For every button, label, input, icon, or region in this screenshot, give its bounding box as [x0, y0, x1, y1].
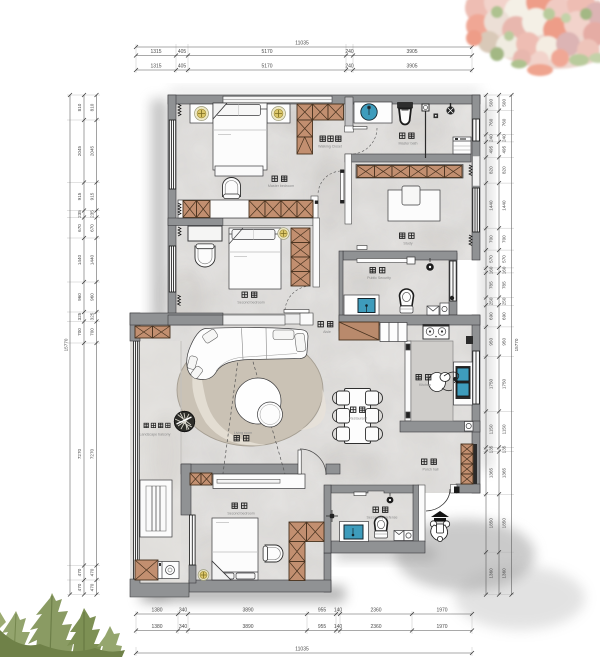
svg-text:950: 950 — [502, 338, 507, 346]
svg-text:Public Security: Public Security — [367, 276, 391, 280]
svg-text:Porch hall: Porch hall — [423, 468, 439, 472]
svg-text:3890: 3890 — [242, 624, 253, 630]
svg-text:495: 495 — [489, 145, 494, 153]
svg-text:1440: 1440 — [90, 254, 95, 265]
svg-text:570: 570 — [489, 255, 494, 263]
svg-text:2360: 2360 — [370, 608, 381, 614]
svg-text:1315: 1315 — [150, 64, 161, 70]
svg-text:1440: 1440 — [502, 200, 507, 211]
svg-text:785: 785 — [502, 281, 507, 289]
svg-text:325: 325 — [90, 312, 95, 320]
svg-text:15770: 15770 — [514, 338, 519, 351]
svg-text:340: 340 — [179, 624, 188, 630]
svg-text:Second bedroom: Second bedroom — [237, 301, 264, 305]
svg-text:Restaurant: Restaurant — [349, 417, 367, 421]
svg-text:670: 670 — [90, 224, 95, 232]
svg-text:1440: 1440 — [77, 254, 82, 265]
svg-text:810: 810 — [90, 103, 95, 111]
svg-text:1365: 1365 — [489, 467, 494, 478]
svg-text:160: 160 — [502, 266, 507, 274]
svg-text:700: 700 — [90, 328, 95, 336]
svg-text:2360: 2360 — [370, 624, 381, 630]
svg-text:3890: 3890 — [242, 608, 253, 614]
svg-text:1850: 1850 — [502, 518, 507, 529]
svg-text:Second bedroom: Second bedroom — [227, 512, 254, 516]
svg-text:500: 500 — [502, 99, 507, 107]
svg-text:690: 690 — [502, 312, 507, 320]
svg-text:1360: 1360 — [489, 568, 494, 579]
svg-text:915: 915 — [90, 192, 95, 200]
svg-text:2045: 2045 — [90, 145, 95, 156]
svg-text:700: 700 — [502, 235, 507, 243]
svg-text:Landscape balcony: Landscape balcony — [140, 433, 171, 437]
svg-text:690: 690 — [489, 312, 494, 320]
svg-text:250: 250 — [502, 297, 507, 305]
svg-text:1380: 1380 — [151, 624, 162, 630]
svg-text:955: 955 — [318, 624, 327, 630]
svg-text:240: 240 — [489, 134, 494, 142]
svg-text:1970: 1970 — [436, 608, 447, 614]
svg-text:470: 470 — [77, 568, 82, 576]
svg-text:11035: 11035 — [295, 41, 309, 47]
svg-text:135: 135 — [489, 445, 494, 453]
svg-text:1970: 1970 — [436, 624, 447, 630]
svg-text:500: 500 — [489, 99, 494, 107]
svg-text:1380: 1380 — [151, 608, 162, 614]
svg-text:235: 235 — [77, 210, 82, 218]
svg-text:5170: 5170 — [261, 64, 272, 70]
svg-text:240: 240 — [345, 64, 354, 70]
svg-text:Study: Study — [403, 242, 412, 246]
svg-text:5170: 5170 — [261, 49, 272, 55]
svg-text:240: 240 — [502, 134, 507, 142]
svg-text:15770: 15770 — [64, 338, 69, 351]
svg-text:250: 250 — [489, 297, 494, 305]
svg-text:7270: 7270 — [90, 448, 95, 459]
svg-text:1365: 1365 — [502, 467, 507, 478]
svg-text:235: 235 — [90, 210, 95, 218]
svg-text:1360: 1360 — [502, 568, 507, 579]
svg-text:1750: 1750 — [502, 378, 507, 389]
svg-text:340: 340 — [179, 608, 188, 614]
svg-text:325: 325 — [77, 312, 82, 320]
svg-text:Living room: Living room — [234, 431, 253, 435]
svg-text:470: 470 — [90, 583, 95, 591]
svg-text:700: 700 — [77, 328, 82, 336]
svg-text:950: 950 — [489, 338, 494, 346]
svg-text:570: 570 — [502, 255, 507, 263]
svg-text:960: 960 — [90, 293, 95, 301]
svg-text:470: 470 — [77, 583, 82, 591]
svg-text:760: 760 — [502, 118, 507, 126]
svg-text:2045: 2045 — [77, 145, 82, 156]
svg-text:820: 820 — [502, 166, 507, 174]
svg-text:1440: 1440 — [489, 200, 494, 211]
svg-text:Secondary defense: Secondary defense — [367, 516, 398, 520]
svg-text:11035: 11035 — [295, 647, 309, 653]
svg-text:Aisle: Aisle — [323, 330, 331, 334]
svg-text:3905: 3905 — [406, 64, 417, 70]
svg-text:820: 820 — [489, 166, 494, 174]
svg-text:405: 405 — [178, 49, 187, 55]
svg-text:405: 405 — [178, 64, 187, 70]
svg-text:470: 470 — [90, 568, 95, 576]
svg-text:160: 160 — [489, 266, 494, 274]
svg-text:960: 960 — [77, 293, 82, 301]
svg-text:1750: 1750 — [489, 378, 494, 389]
svg-text:1150: 1150 — [502, 424, 507, 434]
svg-text:Kitchen: Kitchen — [419, 383, 431, 387]
svg-text:955: 955 — [318, 608, 327, 614]
svg-text:700: 700 — [489, 235, 494, 243]
svg-text:785: 785 — [489, 281, 494, 289]
svg-text:915: 915 — [77, 192, 82, 200]
svg-text:670: 670 — [77, 224, 82, 232]
svg-text:1850: 1850 — [489, 518, 494, 529]
svg-text:3905: 3905 — [406, 49, 417, 55]
svg-text:1150: 1150 — [489, 424, 494, 434]
svg-text:7270: 7270 — [77, 448, 82, 459]
svg-text:Master bedroom: Master bedroom — [268, 184, 294, 188]
svg-text:Master bath: Master bath — [399, 142, 418, 146]
svg-text:Walking Closet: Walking Closet — [318, 145, 342, 149]
svg-text:240: 240 — [345, 49, 354, 55]
svg-text:810: 810 — [77, 103, 82, 111]
svg-text:1315: 1315 — [150, 49, 161, 55]
svg-text:760: 760 — [489, 118, 494, 126]
svg-text:135: 135 — [502, 445, 507, 453]
svg-text:495: 495 — [502, 145, 507, 153]
